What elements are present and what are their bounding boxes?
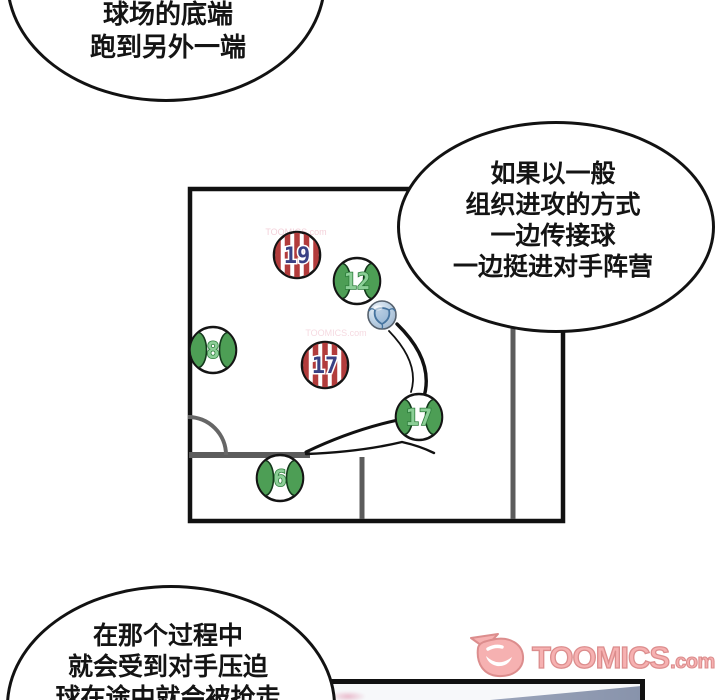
bubble-line: 如果以一般 [397, 159, 709, 190]
bubble-line: 球在途中就会被抢走 [6, 683, 330, 700]
player-ball-12: 12 [334, 258, 381, 304]
player-ball-6: 6 [257, 455, 304, 501]
bubble-line: 一边挺进对手阵营 [397, 252, 709, 283]
speech-bubble-top-left-text: 球场的底端 跑到另外一端 [8, 0, 328, 64]
bubble-line: 一边传接球 [397, 221, 709, 252]
toomics-d-logo-icon [468, 630, 528, 680]
bubble-line: 球场的底端 [8, 0, 328, 31]
soccer-ball-icon [368, 301, 396, 329]
player-number: 6 [273, 467, 286, 492]
bubble-line: 在那个过程中 [6, 621, 330, 652]
player-number: 19 [284, 244, 311, 269]
toomics-brand-text: TOOMICS [532, 642, 669, 673]
bubble-line: 组织进攻的方式 [397, 190, 709, 221]
toomics-watermark: TOOMICS .com [468, 630, 715, 680]
toomics-suffix-text: .com [670, 652, 715, 672]
player-number: 17 [406, 406, 433, 431]
player-number: 12 [344, 270, 371, 295]
player-ball-19: 19 [274, 232, 320, 278]
speech-bubble-bottom-left-text: 在那个过程中 就会受到对手压迫 球在途中就会被抢走 [6, 621, 330, 700]
next-comic-panel [288, 679, 645, 700]
speech-bubble-right-text: 如果以一般 组织进攻的方式 一边传接球 一边挺进对手阵营 [397, 159, 709, 283]
comic-page: TOOMICS.com TOOMICS.com 19 [0, 0, 720, 700]
player-number: 8 [206, 339, 219, 364]
player-ball-8: 8 [190, 327, 237, 373]
bubble-line: 就会受到对手压迫 [6, 652, 330, 683]
player-number: 17 [312, 354, 339, 379]
player-ball-17-striped: 17 [302, 342, 348, 388]
player-ball-17-green: 17 [396, 394, 443, 440]
faint-watermark-text: TOOMICS.com [305, 328, 366, 338]
bubble-line: 跑到另外一端 [8, 31, 328, 64]
